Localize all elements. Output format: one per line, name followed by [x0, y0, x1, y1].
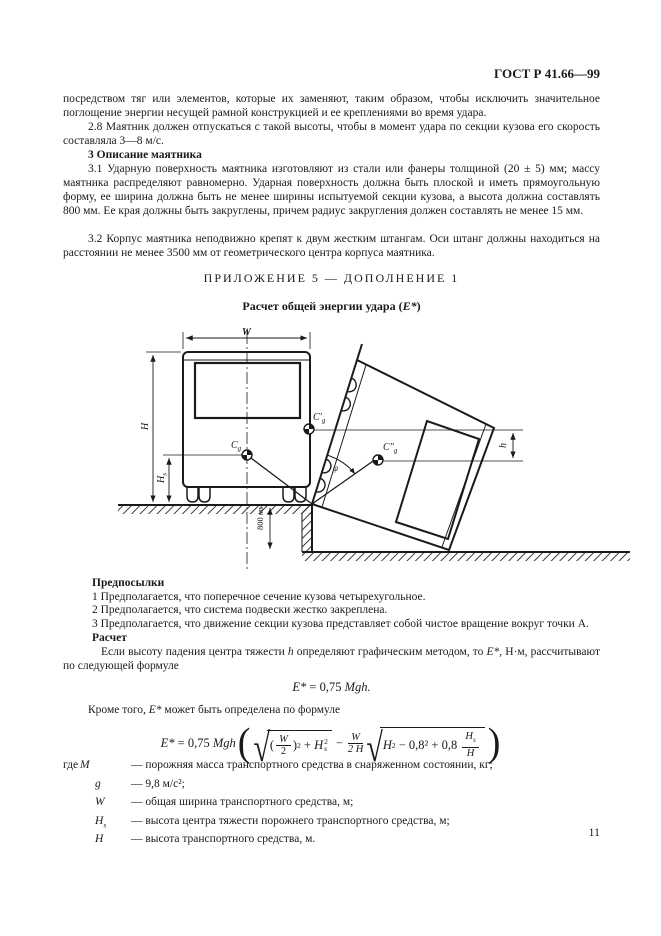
step-ledge — [302, 505, 312, 552]
definition-row: H — высота транспортного средства, м. — [63, 832, 600, 851]
label-w: W — [242, 327, 252, 338]
definition-row: W — общая ширина транспортного средства,… — [63, 795, 600, 814]
assumptions-title: Предпосылки — [92, 577, 600, 591]
lower-ground — [302, 552, 630, 561]
tilted-floor-inner-line — [322, 365, 366, 507]
fraction-w-2h: W2 H — [348, 732, 363, 755]
formula-simple: Е* = 0,75 Mgh. — [63, 680, 600, 695]
pivot-to-cg2-line — [312, 459, 376, 504]
tilted-floor-line — [312, 344, 362, 504]
calc-intro: Если высоту падения центра тяжести h опр… — [63, 645, 600, 673]
tilted-vehicle-body — [312, 344, 494, 550]
cg-to-pivot-line — [247, 455, 312, 504]
definition-row: g — 9,8 м/с²; — [63, 777, 600, 796]
formula2-intro: Кроме того, Е* может быть определена по … — [88, 703, 600, 717]
calc-title: Расчет — [92, 632, 600, 646]
document-page: ГОСТ Р 41.66—99 посредством тяг или элем… — [0, 0, 661, 936]
page-number: 11 — [588, 825, 600, 840]
definition-row: Hs — высота центра тяжести порожнего тра… — [63, 814, 600, 833]
label-cg: Cg — [231, 440, 242, 453]
definitions-list: где M — порожняя масса транспортного сре… — [63, 758, 600, 851]
cg-top-point — [304, 424, 314, 434]
assumption-item: 3 Предполагается, что движение секции ку… — [92, 618, 600, 632]
wheel — [199, 487, 210, 502]
var-e: Е* — [486, 646, 499, 658]
label-hs: Hs — [156, 473, 169, 484]
dimensions — [146, 332, 513, 549]
vehicle-window — [195, 363, 300, 418]
label-small-h: h — [498, 443, 509, 448]
label-cg-dprime: C″g — [383, 442, 398, 455]
label-cg-prime: C′g — [313, 412, 326, 425]
assumptions-block: Предпосылки 1 Предполагается, что попере… — [92, 577, 600, 646]
assumption-item: 1 Предполагается, что поперечное сечение… — [92, 591, 600, 605]
radical-2: √ H2 − 0,8² + 0,8 HsH — [366, 727, 484, 758]
vehicle-outline — [183, 352, 310, 487]
tilted-outline — [312, 360, 494, 550]
label-h: H — [140, 422, 151, 431]
upper-ground — [118, 505, 312, 514]
label-angle-phi: φ — [333, 463, 338, 473]
radical-1: √ ( W2 )2 + H 2s — [253, 730, 331, 757]
wheel — [295, 487, 306, 502]
assumption-item: 2 Предполагается, что система подвески ж… — [92, 604, 600, 618]
wheel — [187, 487, 198, 502]
cg-final-point — [373, 455, 383, 465]
label-800mm: 800 мм — [255, 504, 265, 530]
cg-point — [242, 450, 252, 460]
tilted-window — [396, 421, 479, 539]
definition-row: где M — порожняя масса транспортного сре… — [63, 758, 600, 777]
